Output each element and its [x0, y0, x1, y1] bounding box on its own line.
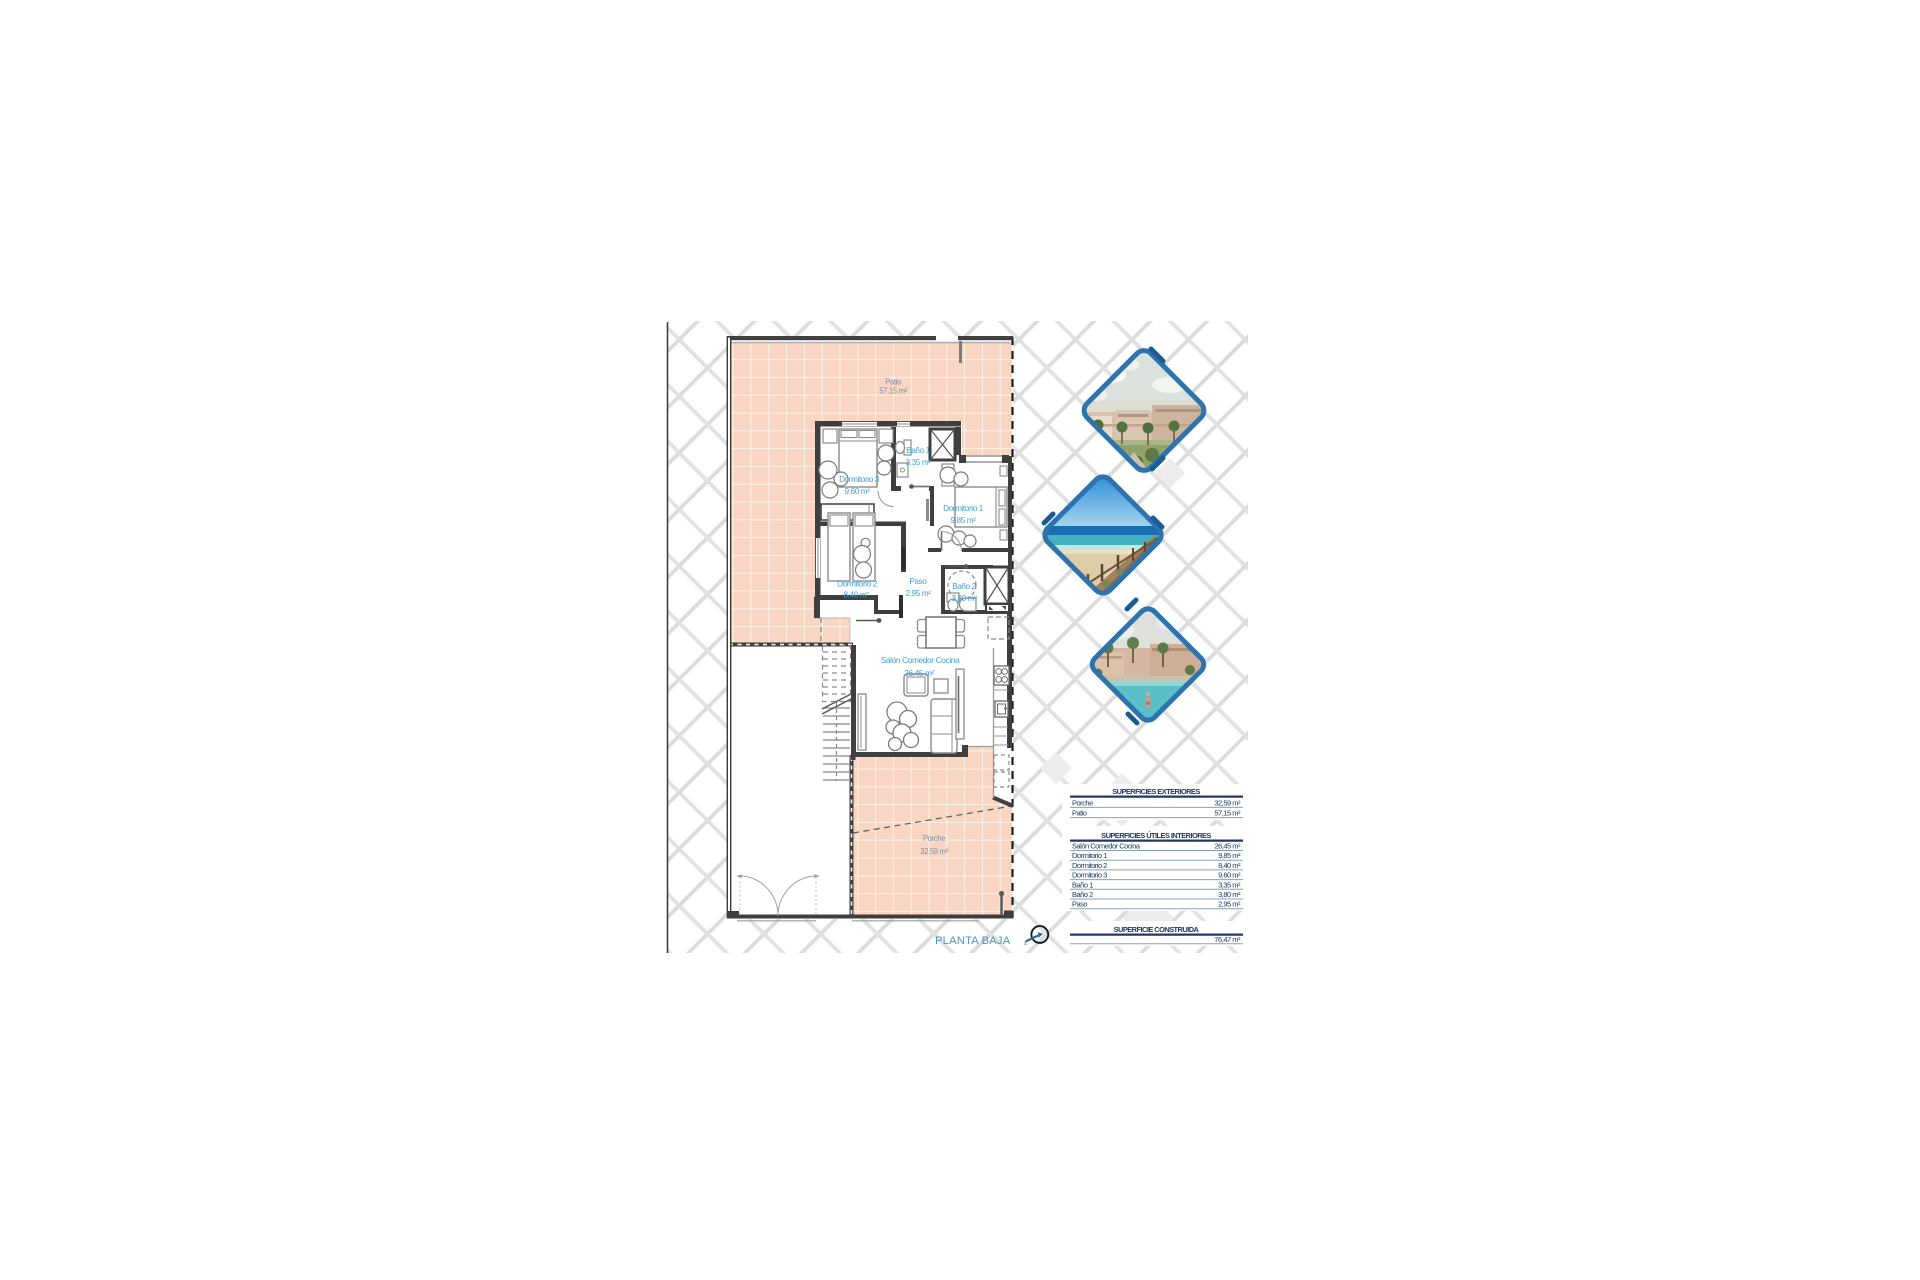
svg-text:SUPERFICIES ÚTILES INTERIORES: SUPERFICIES ÚTILES INTERIORES: [1101, 831, 1211, 840]
svg-text:z: z: [1024, 940, 1027, 947]
svg-text:57,15 m²: 57,15 m²: [1214, 809, 1241, 818]
svg-text:8,40 m²: 8,40 m²: [1218, 861, 1241, 870]
svg-text:9,60 m²: 9,60 m²: [1218, 871, 1241, 880]
svg-text:SUPERFICIES EXTERIORES: SUPERFICIES EXTERIORES: [1112, 787, 1200, 796]
svg-text:Dormitorio 2: Dormitorio 2: [837, 580, 878, 589]
svg-text:Baño 2: Baño 2: [952, 582, 976, 591]
svg-text:9.60 m²: 9.60 m²: [845, 487, 871, 496]
svg-text:Baño 1: Baño 1: [906, 446, 930, 455]
svg-text:26.45 m²: 26.45 m²: [904, 668, 934, 678]
svg-text:57.15 m²: 57.15 m²: [879, 387, 907, 396]
svg-text:Porche: Porche: [923, 834, 945, 843]
svg-text:Baño 2: Baño 2: [1072, 890, 1093, 899]
svg-text:Baño 1: Baño 1: [1072, 880, 1093, 889]
svg-text:8.40 m²: 8.40 m²: [844, 591, 870, 600]
svg-text:3,80 m²: 3,80 m²: [1218, 890, 1241, 899]
svg-text:Paso: Paso: [909, 577, 927, 586]
svg-text:Patio: Patio: [1072, 809, 1087, 818]
svg-text:3.80 m²: 3.80 m²: [952, 594, 978, 603]
svg-text:2.95 m²: 2.95 m²: [906, 589, 932, 598]
svg-text:9,85 m²: 9,85 m²: [1218, 851, 1241, 860]
svg-text:Paso: Paso: [1072, 900, 1087, 909]
svg-text:Dormitorio 1: Dormitorio 1: [943, 504, 984, 513]
svg-text:3.35 m²: 3.35 m²: [906, 458, 932, 467]
svg-text:32,59 m²: 32,59 m²: [1214, 798, 1241, 807]
svg-text:Salón Comedor Cocina: Salón Comedor Cocina: [1072, 842, 1141, 851]
svg-text:PLANTA BAJA: PLANTA BAJA: [935, 935, 1011, 947]
svg-text:Dormitorio 2: Dormitorio 2: [1072, 861, 1107, 870]
svg-text:Dormitorio 1: Dormitorio 1: [1072, 851, 1107, 860]
svg-text:32.59 m²: 32.59 m²: [920, 847, 948, 856]
svg-text:76,47 m²: 76,47 m²: [1214, 935, 1241, 944]
svg-text:Porche: Porche: [1072, 798, 1093, 807]
svg-text:2,95 m²: 2,95 m²: [1218, 900, 1241, 909]
svg-text:Patio: Patio: [885, 378, 902, 387]
svg-text:Salón Comedor Cocina: Salón Comedor Cocina: [881, 655, 960, 665]
svg-text:3,35 m²: 3,35 m²: [1218, 880, 1241, 889]
svg-text:Dormitorio 3: Dormitorio 3: [839, 475, 880, 484]
svg-text:Dormitorio 3: Dormitorio 3: [1072, 871, 1107, 880]
svg-text:9.85 m²: 9.85 m²: [951, 516, 977, 525]
svg-text:SUPERFICIE CONSTRUIDA: SUPERFICIE CONSTRUIDA: [1114, 925, 1200, 934]
svg-text:26,45 m²: 26,45 m²: [1214, 842, 1241, 851]
